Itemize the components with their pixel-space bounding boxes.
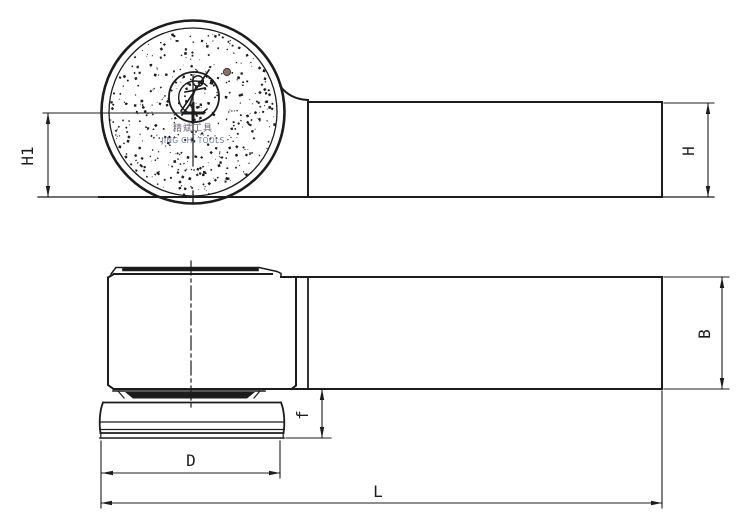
dim-d: D <box>102 441 280 478</box>
arrowhead <box>651 501 662 505</box>
dim-h-label: H <box>679 146 698 156</box>
dim-b: B <box>664 277 729 389</box>
arrowhead <box>269 471 280 475</box>
grinding-wheel-face: 精斌工具 JING CHI TOOLS <box>102 21 285 205</box>
arrowhead <box>706 186 710 197</box>
gear-head-body <box>108 274 296 389</box>
brand-logo <box>169 70 219 122</box>
dim-b-label: B <box>695 329 714 339</box>
clamp-flange <box>113 391 265 399</box>
arrowhead <box>706 103 710 114</box>
arrowhead <box>320 427 324 438</box>
dim-h: H <box>664 103 714 197</box>
dim-h1-label: H1 <box>18 146 37 165</box>
brand-name-cn: 精斌工具 <box>173 122 213 134</box>
dim-f: f <box>286 389 331 438</box>
dim-h1: H1 <box>18 113 193 197</box>
dim-l-label: L <box>373 482 383 501</box>
arrowhead <box>46 186 50 197</box>
arrowhead <box>320 389 324 400</box>
arrowhead <box>720 277 724 288</box>
arrowhead <box>101 501 112 505</box>
dim-f-label: f <box>293 410 312 420</box>
wheel-side-profile <box>100 403 285 439</box>
arrowhead <box>720 378 724 389</box>
spindle-hole-dot <box>223 68 230 75</box>
head-top-cap <box>111 268 281 278</box>
handle-front <box>281 87 663 198</box>
dim-d-label: D <box>186 451 196 470</box>
engineering-drawing: 精斌工具 JING CHI TOOLS H1 H <box>0 0 750 523</box>
drawing-canvas: 精斌工具 JING CHI TOOLS H1 H <box>0 0 750 523</box>
arrowhead <box>46 113 50 124</box>
handle-side <box>114 277 663 389</box>
brand-name-en: JING CHI TOOLS <box>160 136 224 145</box>
arrowhead <box>102 471 113 475</box>
front-view: 精斌工具 JING CHI TOOLS H1 H <box>18 21 714 205</box>
side-view: f B D L <box>100 261 729 508</box>
dim-l: L <box>101 391 662 508</box>
